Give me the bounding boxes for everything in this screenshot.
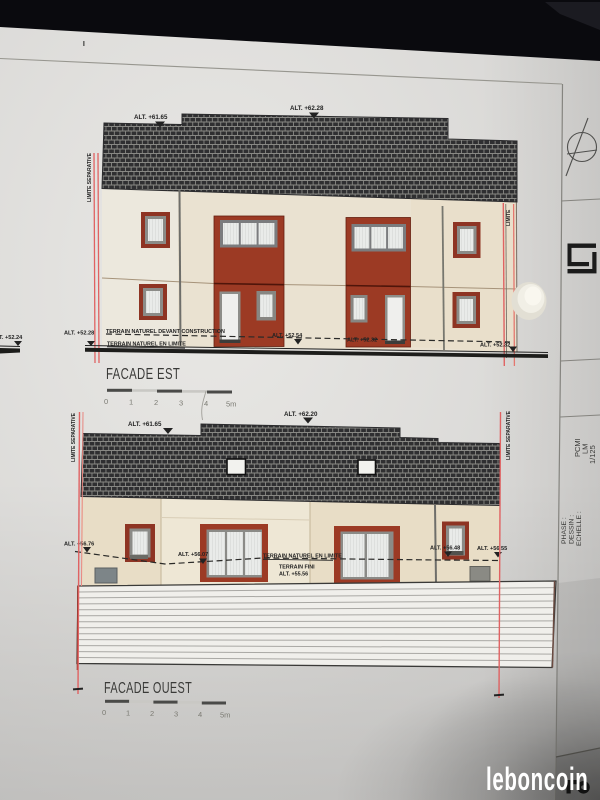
svg-text:5m: 5m bbox=[226, 400, 236, 409]
svg-text:ALT. +52.32: ALT. +52.32 bbox=[347, 338, 377, 344]
svg-text:LIMITE: LIMITE bbox=[506, 209, 512, 226]
svg-text:ALT. +56.55: ALT. +56.55 bbox=[477, 546, 507, 552]
svg-text:0: 0 bbox=[102, 708, 106, 717]
svg-text:LIMITE SEPARATIVE: LIMITE SEPARATIVE bbox=[71, 412, 77, 462]
svg-text:3: 3 bbox=[174, 710, 178, 719]
svg-text:ALT. +61.65: ALT. +61.65 bbox=[128, 421, 162, 428]
svg-text:2: 2 bbox=[150, 709, 154, 718]
svg-text:TERRAIN NATUREL DEVANT CONSTRU: TERRAIN NATUREL DEVANT CONSTRUCTION bbox=[106, 329, 225, 335]
svg-text:leboncoin: leboncoin bbox=[486, 761, 588, 797]
svg-text:3: 3 bbox=[179, 399, 183, 408]
svg-text:ALT. +55.56: ALT. +55.56 bbox=[279, 572, 308, 578]
svg-text:ECHELLE :: ECHELLE : bbox=[576, 511, 583, 546]
svg-text:ALT. +52.54: ALT. +52.54 bbox=[272, 333, 303, 339]
svg-text:ALT. +52.28: ALT. +52.28 bbox=[64, 331, 94, 337]
svg-text:5m: 5m bbox=[220, 711, 230, 720]
svg-text:ALT. +52.32: ALT. +52.32 bbox=[480, 343, 510, 349]
svg-text:ALT. +62.20: ALT. +62.20 bbox=[284, 411, 318, 418]
svg-text:2: 2 bbox=[154, 398, 158, 407]
svg-text:LIMITE SEPARATIVE: LIMITE SEPARATIVE bbox=[506, 410, 512, 460]
svg-text:ALT. +56.48: ALT. +56.48 bbox=[430, 546, 460, 552]
svg-text:ALT. +62.28: ALT. +62.28 bbox=[290, 105, 324, 112]
svg-text:LIMITE SEPARATIVE: LIMITE SEPARATIVE bbox=[87, 152, 93, 202]
svg-text:FACADE EST: FACADE EST bbox=[106, 364, 180, 382]
svg-text:TERRAIN FINI: TERRAIN FINI bbox=[279, 565, 315, 571]
svg-text:ALT. +56.07: ALT. +56.07 bbox=[178, 552, 208, 558]
svg-text:0: 0 bbox=[104, 397, 108, 406]
svg-text:1/125: 1/125 bbox=[588, 445, 597, 464]
svg-text:1: 1 bbox=[126, 709, 130, 718]
svg-text:4: 4 bbox=[198, 710, 202, 719]
svg-text:TERRAIN NATUREL EN LIMITE: TERRAIN NATUREL EN LIMITE bbox=[263, 554, 342, 560]
svg-text:ALT. +61.65: ALT. +61.65 bbox=[134, 114, 168, 121]
svg-text:FACADE OUEST: FACADE OUEST bbox=[104, 679, 192, 697]
svg-text:1: 1 bbox=[129, 398, 133, 407]
svg-text:PHASE :: PHASE : bbox=[561, 517, 568, 544]
svg-text:ALT. +52.24: ALT. +52.24 bbox=[0, 335, 23, 341]
svg-text:4: 4 bbox=[204, 399, 208, 408]
svg-text:DESSIN :: DESSIN : bbox=[569, 515, 576, 544]
